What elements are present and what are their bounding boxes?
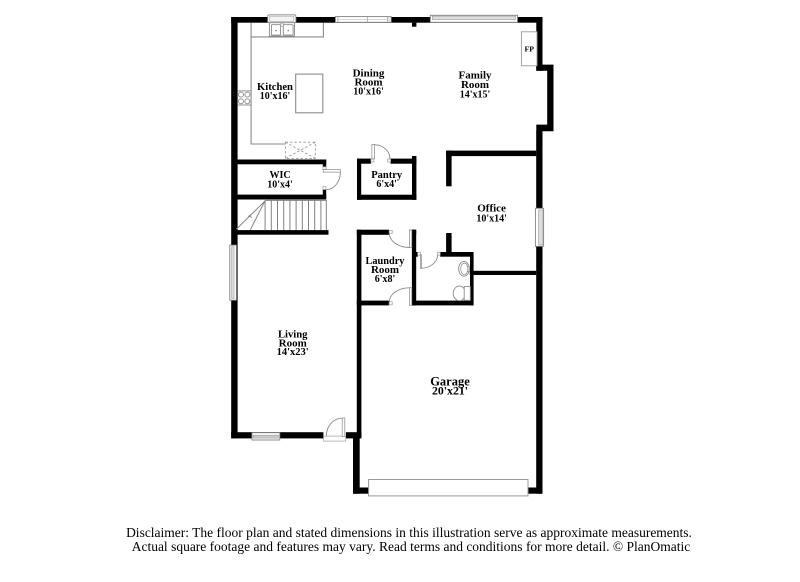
svg-text:10'x16': 10'x16' (260, 91, 291, 102)
svg-text:Actual square footage and feat: Actual square footage and features may v… (132, 539, 691, 554)
svg-text:20'x21': 20'x21' (432, 384, 468, 398)
svg-text:14'x23': 14'x23' (277, 347, 309, 358)
svg-text:10'x14': 10'x14' (476, 213, 507, 224)
svg-text:FP: FP (525, 45, 535, 54)
svg-text:10'x16': 10'x16' (353, 86, 384, 97)
svg-text:10'x4': 10'x4' (267, 180, 293, 191)
svg-text:6'x8': 6'x8' (375, 274, 396, 285)
svg-text:6'x4': 6'x4' (376, 179, 397, 190)
svg-text:14'x15': 14'x15' (460, 90, 491, 101)
svg-text:Disclaimer: The floor plan and: Disclaimer: The floor plan and stated di… (126, 525, 692, 540)
